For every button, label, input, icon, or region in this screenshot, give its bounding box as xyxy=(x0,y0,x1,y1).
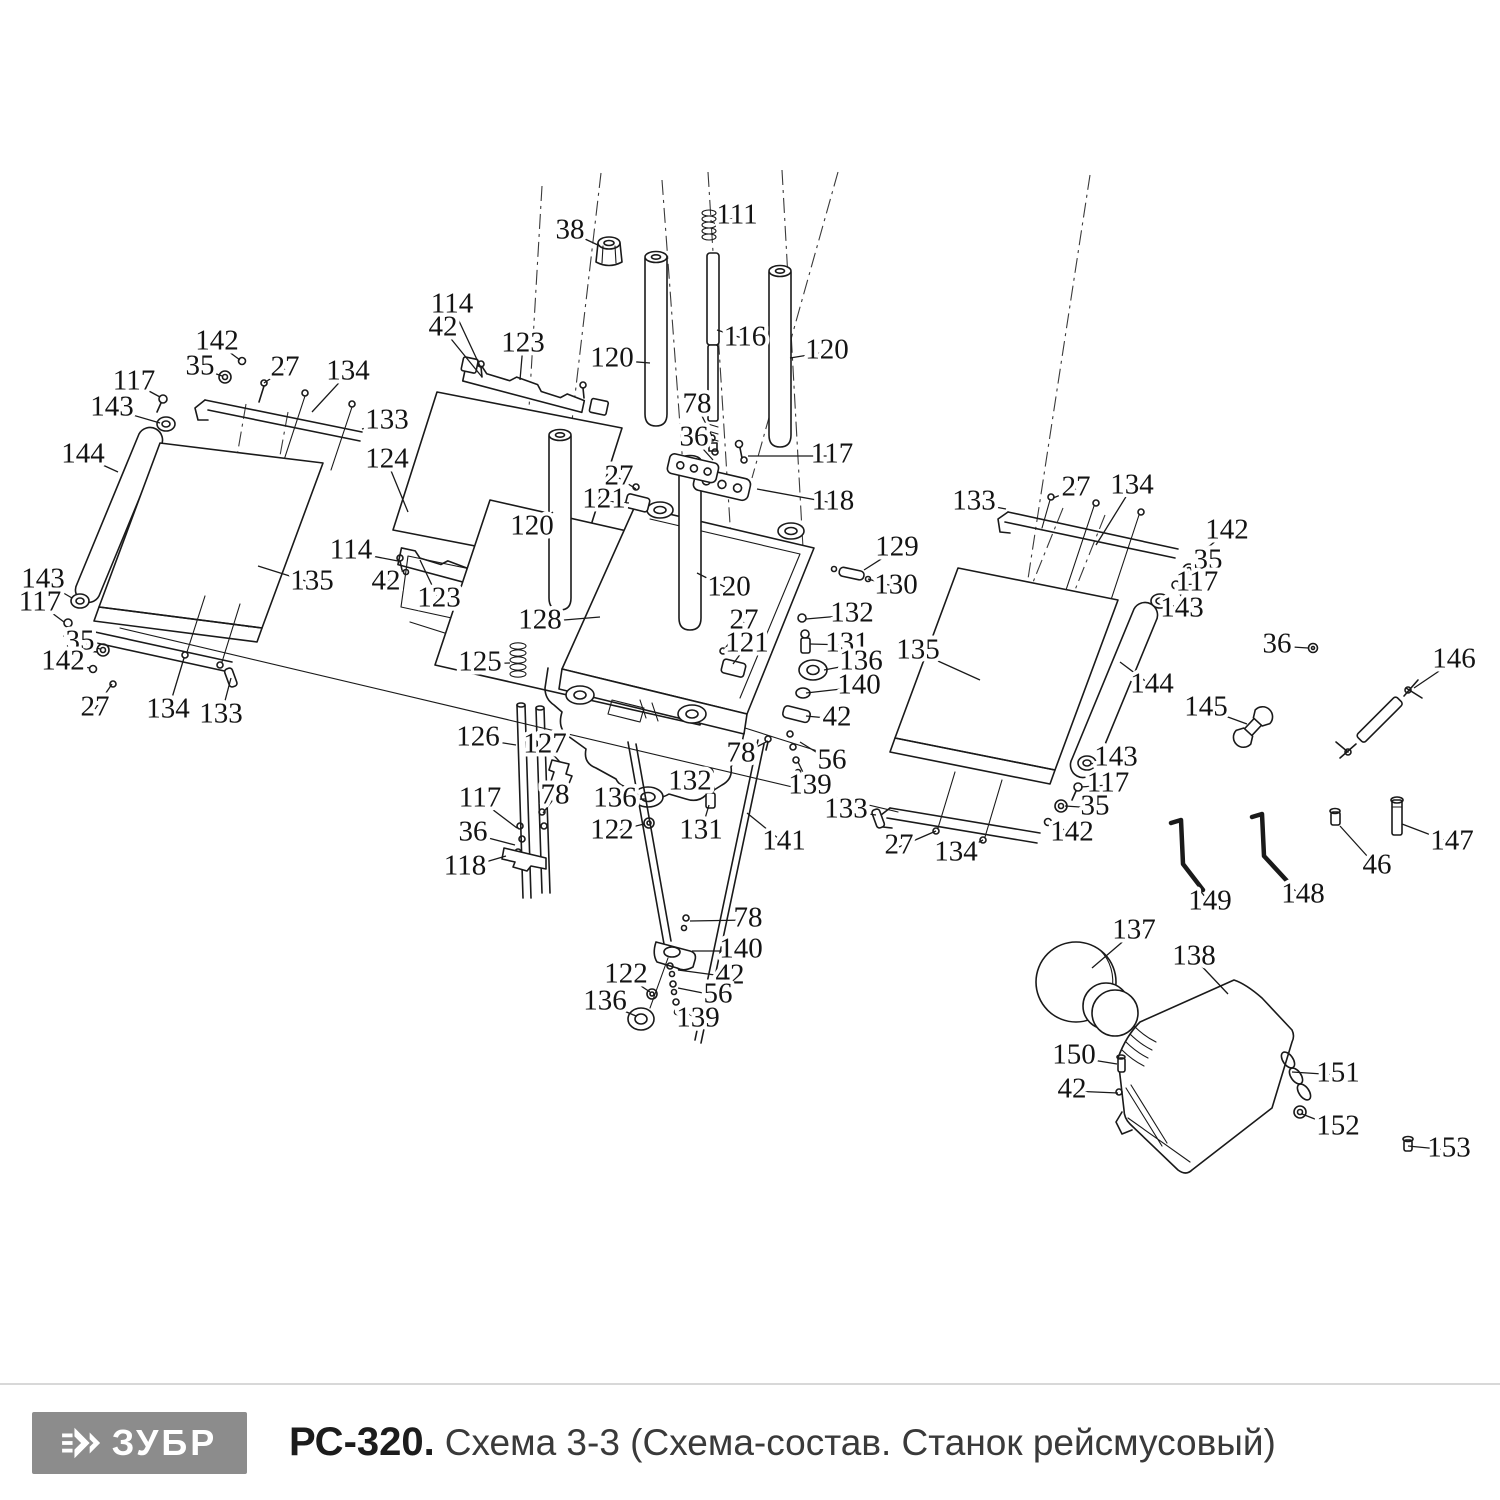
part-label-42: 42 xyxy=(429,311,458,343)
part-label-134: 134 xyxy=(934,836,978,868)
part-label-78: 78 xyxy=(683,388,712,420)
part-label-132: 132 xyxy=(668,765,712,797)
part-label-121: 121 xyxy=(725,627,769,659)
part-label-126: 126 xyxy=(456,721,500,753)
part-label-135: 135 xyxy=(290,565,334,597)
part-label-27: 27 xyxy=(885,829,914,861)
schema-description: Схема 3-3 (Схема-состав. Станок рейсмусо… xyxy=(445,1422,1276,1463)
part-label-120: 120 xyxy=(805,334,849,366)
part-label-129: 129 xyxy=(875,531,919,563)
exploded-diagram: 3811111442123120116120783611727121118142… xyxy=(0,0,1500,1383)
part-label-134: 134 xyxy=(326,355,370,387)
part-label-132: 132 xyxy=(830,597,874,629)
part-label-27: 27 xyxy=(1062,471,1091,503)
part-label-145: 145 xyxy=(1184,691,1228,723)
part-label-125: 125 xyxy=(458,646,502,678)
part-label-142: 142 xyxy=(1050,816,1094,848)
part-label-134: 134 xyxy=(146,693,190,725)
part-label-143: 143 xyxy=(90,391,134,423)
part-label-36: 36 xyxy=(1263,628,1292,660)
part-label-131: 131 xyxy=(679,814,723,846)
part-label-153: 153 xyxy=(1427,1132,1471,1164)
part-label-148: 148 xyxy=(1281,878,1325,910)
part-label-36: 36 xyxy=(459,816,488,848)
part-label-150: 150 xyxy=(1052,1039,1096,1071)
part-label-147: 147 xyxy=(1430,825,1474,857)
part-label-121: 121 xyxy=(582,483,626,515)
part-label-42: 42 xyxy=(372,565,401,597)
part-label-27: 27 xyxy=(271,351,300,383)
part-label-42: 42 xyxy=(823,701,852,733)
part-label-35: 35 xyxy=(186,350,215,382)
part-label-124: 124 xyxy=(365,443,409,475)
part-label-38: 38 xyxy=(556,214,585,246)
part-label-142: 142 xyxy=(1205,514,1249,546)
part-label-42: 42 xyxy=(1058,1073,1087,1105)
part-label-140: 140 xyxy=(837,669,881,701)
part-label-117: 117 xyxy=(459,782,501,814)
part-label-135: 135 xyxy=(896,634,940,666)
part-label-137: 137 xyxy=(1112,914,1156,946)
model-code: РС-320. xyxy=(289,1420,435,1464)
part-label-130: 130 xyxy=(874,569,918,601)
part-label-152: 152 xyxy=(1316,1110,1360,1142)
part-label-133: 133 xyxy=(199,698,243,730)
part-label-120: 120 xyxy=(510,510,554,542)
schematic-page: 3811111442123120116120783611727121118142… xyxy=(0,0,1500,1500)
part-label-116: 116 xyxy=(724,321,766,353)
part-label-120: 120 xyxy=(707,571,751,603)
part-label-46: 46 xyxy=(1363,849,1392,881)
part-label-143: 143 xyxy=(1160,592,1204,624)
part-label-144: 144 xyxy=(1130,668,1174,700)
part-label-127: 127 xyxy=(523,728,567,760)
part-label-118: 118 xyxy=(444,850,486,882)
part-label-123: 123 xyxy=(501,327,545,359)
part-label-142: 142 xyxy=(41,645,85,677)
part-label-36: 36 xyxy=(680,421,709,453)
part-label-117: 117 xyxy=(811,438,853,470)
part-label-138: 138 xyxy=(1172,940,1216,972)
part-label-114: 114 xyxy=(330,534,373,566)
part-label-123: 123 xyxy=(417,582,461,614)
part-label-149: 149 xyxy=(1188,885,1232,917)
part-label-133: 133 xyxy=(365,404,409,436)
zubr-arrow-icon xyxy=(62,1424,104,1462)
part-label-133: 133 xyxy=(824,793,868,825)
part-label-117: 117 xyxy=(19,586,61,618)
brand-logo: ЗУБР xyxy=(32,1412,247,1474)
part-label-144: 144 xyxy=(61,438,105,470)
footer: ЗУБР РС-320.Схема 3-3 (Схема-состав. Ста… xyxy=(0,1383,1500,1500)
part-label-78: 78 xyxy=(734,902,763,934)
part-label-118: 118 xyxy=(812,485,854,517)
part-label-78: 78 xyxy=(727,737,756,769)
part-label-146: 146 xyxy=(1432,643,1476,675)
part-label-120: 120 xyxy=(590,342,634,374)
part-label-141: 141 xyxy=(762,825,806,857)
part-label-134: 134 xyxy=(1110,469,1154,501)
part-label-133: 133 xyxy=(952,485,996,517)
part-label-122: 122 xyxy=(590,814,634,846)
part-label-151: 151 xyxy=(1316,1057,1360,1089)
schema-title: РС-320.Схема 3-3 (Схема-состав. Станок р… xyxy=(289,1420,1276,1465)
part-label-136: 136 xyxy=(593,782,637,814)
brand-name: ЗУБР xyxy=(112,1422,217,1464)
part-label-139: 139 xyxy=(676,1002,720,1034)
part-label-27: 27 xyxy=(81,691,110,723)
part-label-78: 78 xyxy=(541,779,570,811)
part-label-136: 136 xyxy=(583,985,627,1017)
part-label-111: 111 xyxy=(716,199,757,231)
part-label-128: 128 xyxy=(518,604,562,636)
